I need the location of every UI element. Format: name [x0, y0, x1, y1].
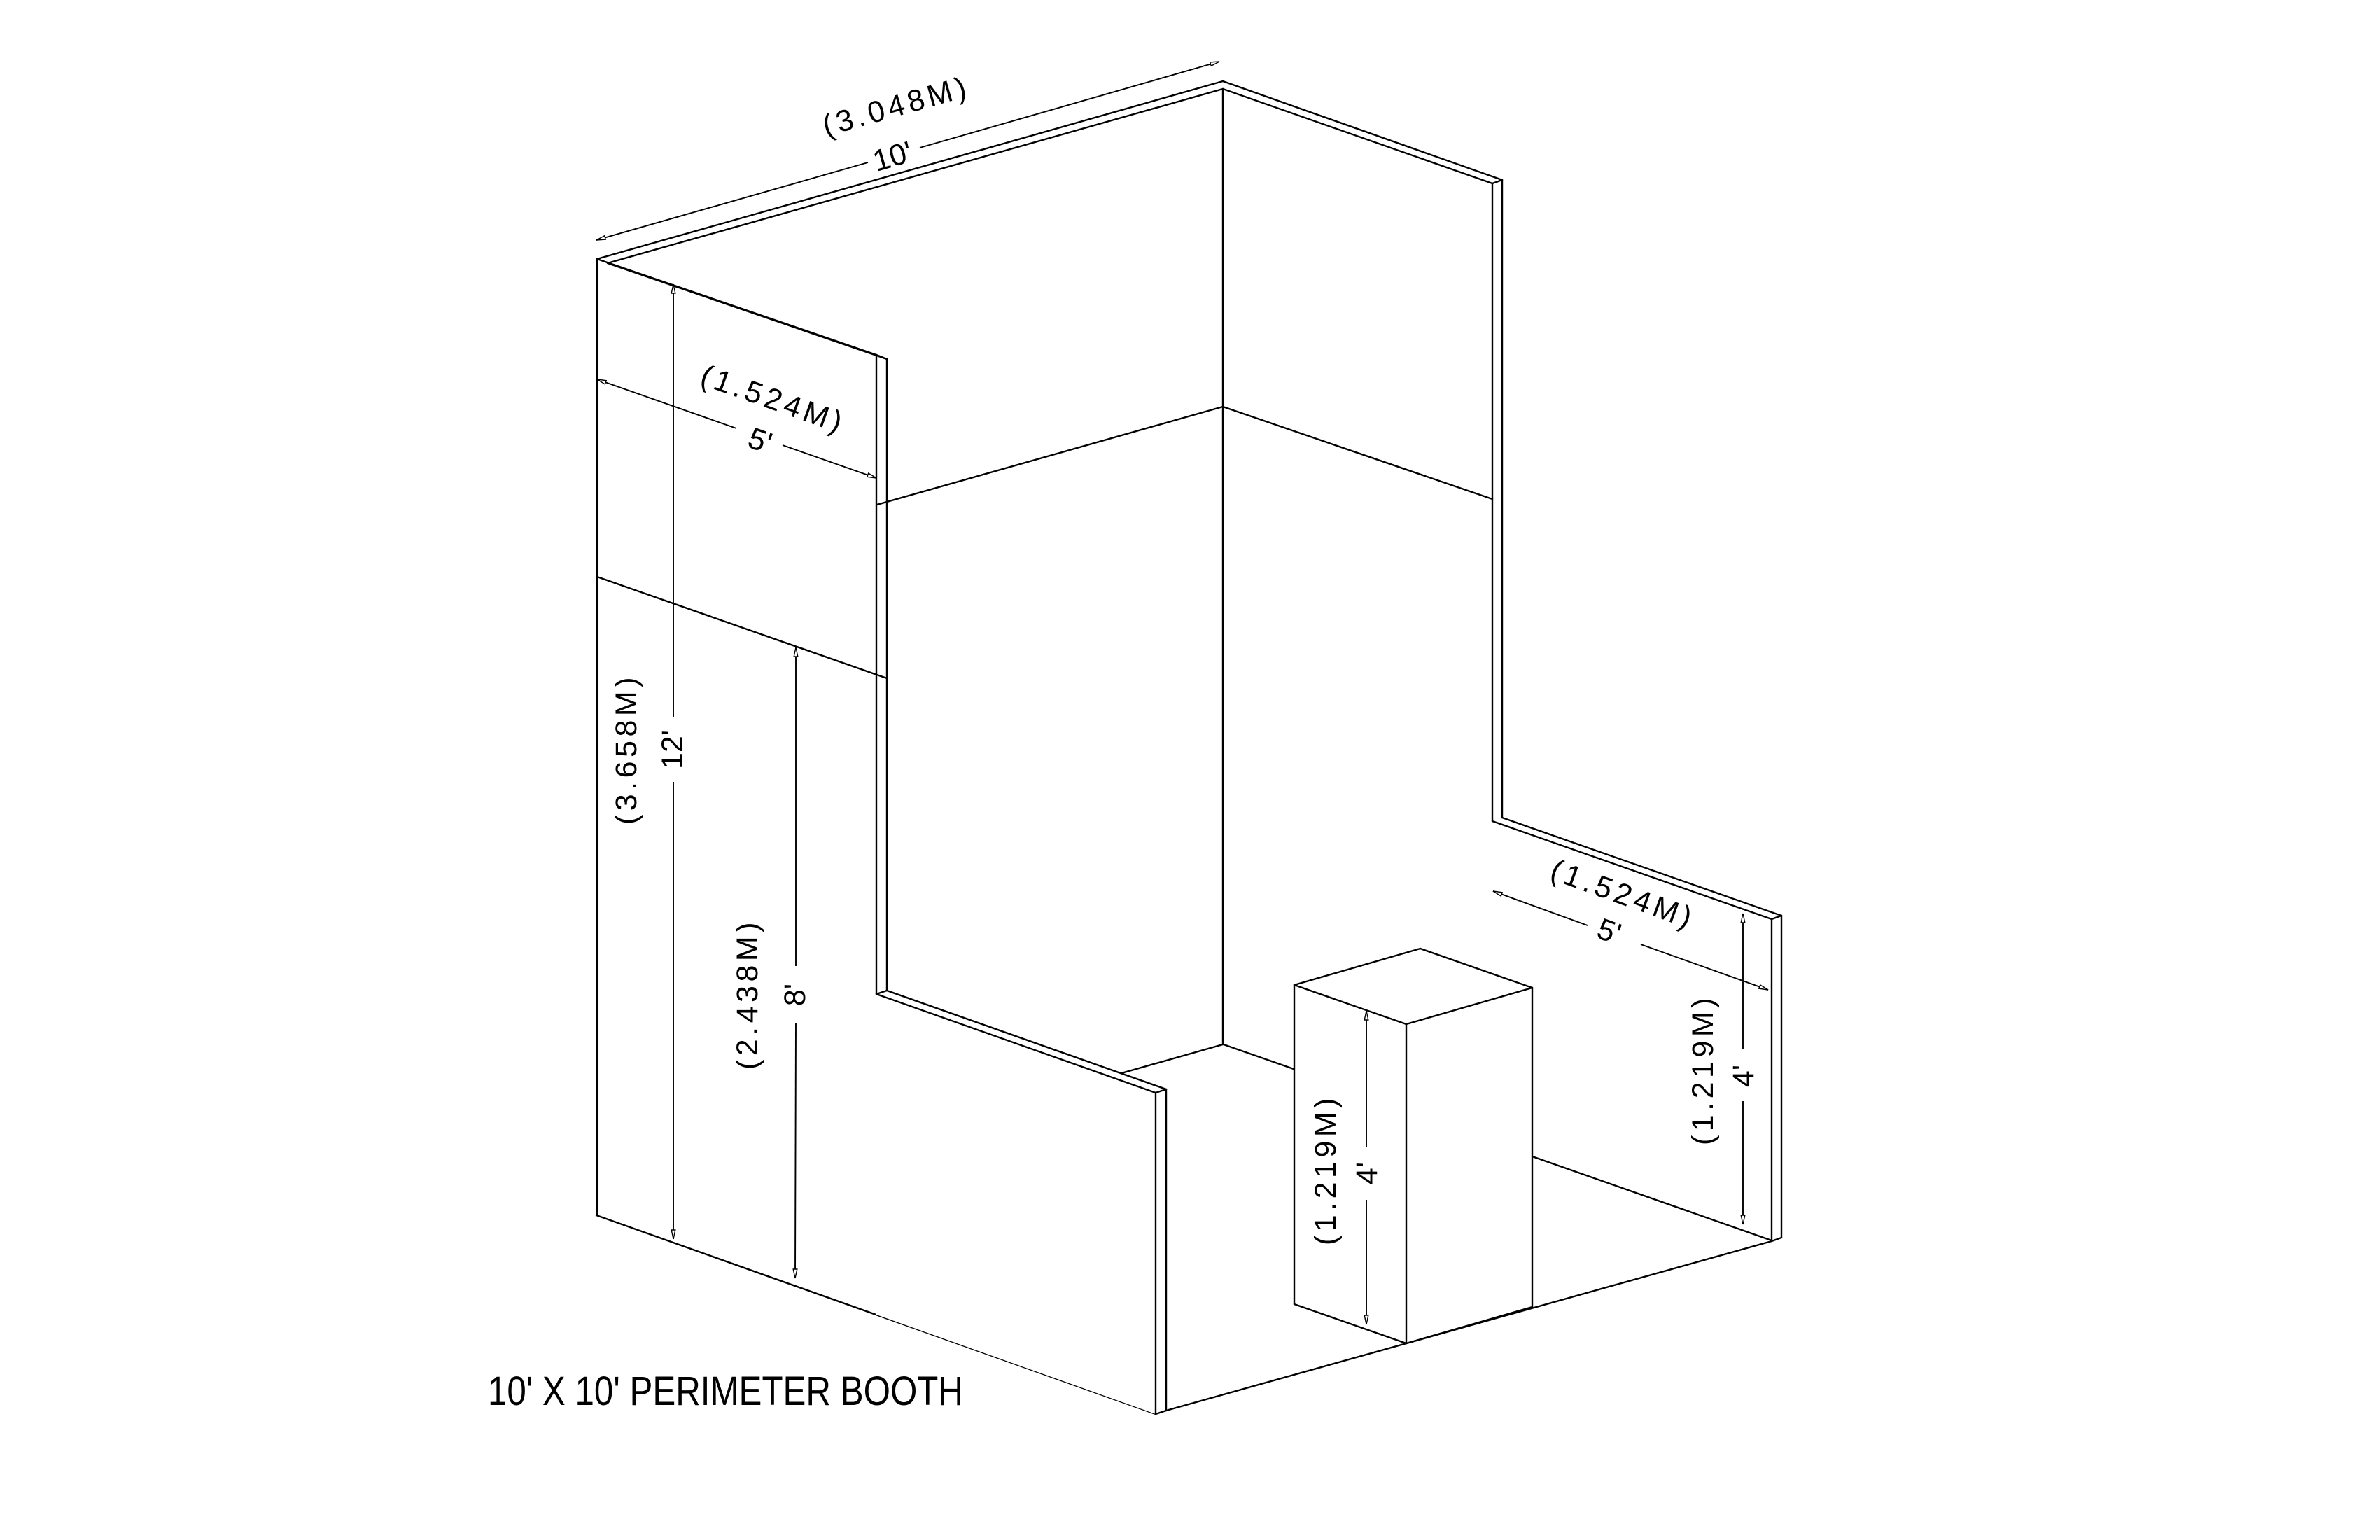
svg-text:8': 8' [778, 983, 812, 1006]
svg-text:4': 4' [1350, 1162, 1384, 1184]
svg-text:12': 12' [656, 730, 689, 769]
svg-text:(2.438M): (2.438M) [731, 918, 764, 1070]
svg-text:(1.219M): (1.219M) [1686, 994, 1720, 1145]
svg-text:(3.658M): (3.658M) [610, 673, 643, 825]
svg-text:(1.219M): (1.219M) [1309, 1094, 1343, 1245]
svg-text:10' X 10' PERIMETER BOOTH: 10' X 10' PERIMETER BOOTH [488, 1368, 963, 1414]
svg-text:4': 4' [1727, 1065, 1760, 1087]
